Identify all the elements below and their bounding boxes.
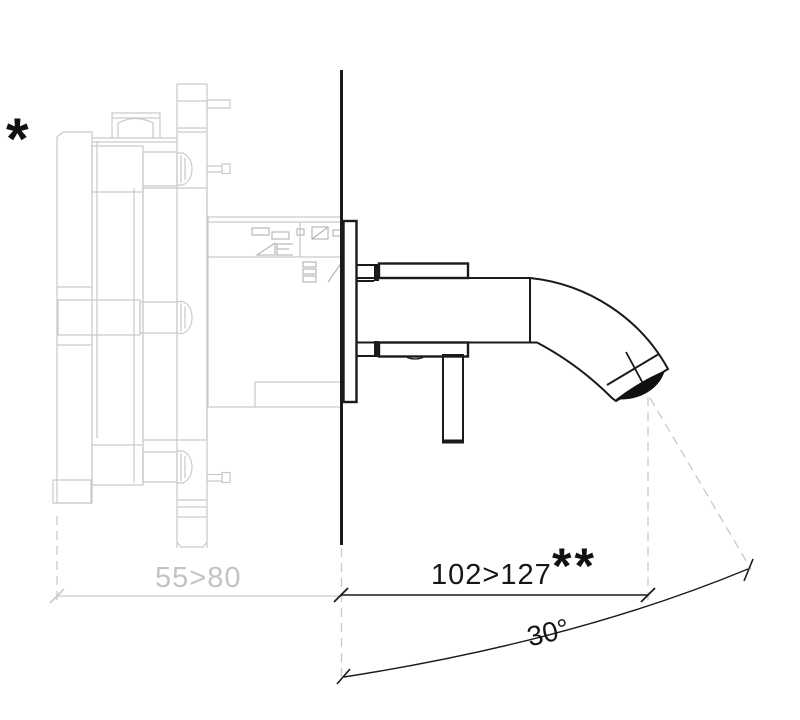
hidden-extension-lines: [57, 397, 751, 679]
dim-label-spout-projection: 102>127: [431, 561, 552, 590]
concealed-valve-body-drawing: [53, 84, 341, 548]
drawing-canvas: [0, 0, 800, 720]
cartridge-detail-glyphs: [252, 227, 342, 282]
spout-body: [357, 278, 531, 343]
footnote-marker-asterisk: *: [6, 111, 29, 169]
upper-sleeve: [379, 264, 468, 279]
spray-angled-dashed-line: [650, 398, 751, 569]
dim-label-recess-depth: 55>80: [155, 564, 241, 593]
handle-lever: [443, 355, 463, 441]
faucet-technical-drawing: * 55>80 102>127 ** 30°: [0, 0, 800, 720]
footnote-marker-double-asterisk: **: [552, 541, 597, 591]
spout-drawing: [344, 221, 669, 442]
escutcheon-plate: [344, 221, 357, 402]
